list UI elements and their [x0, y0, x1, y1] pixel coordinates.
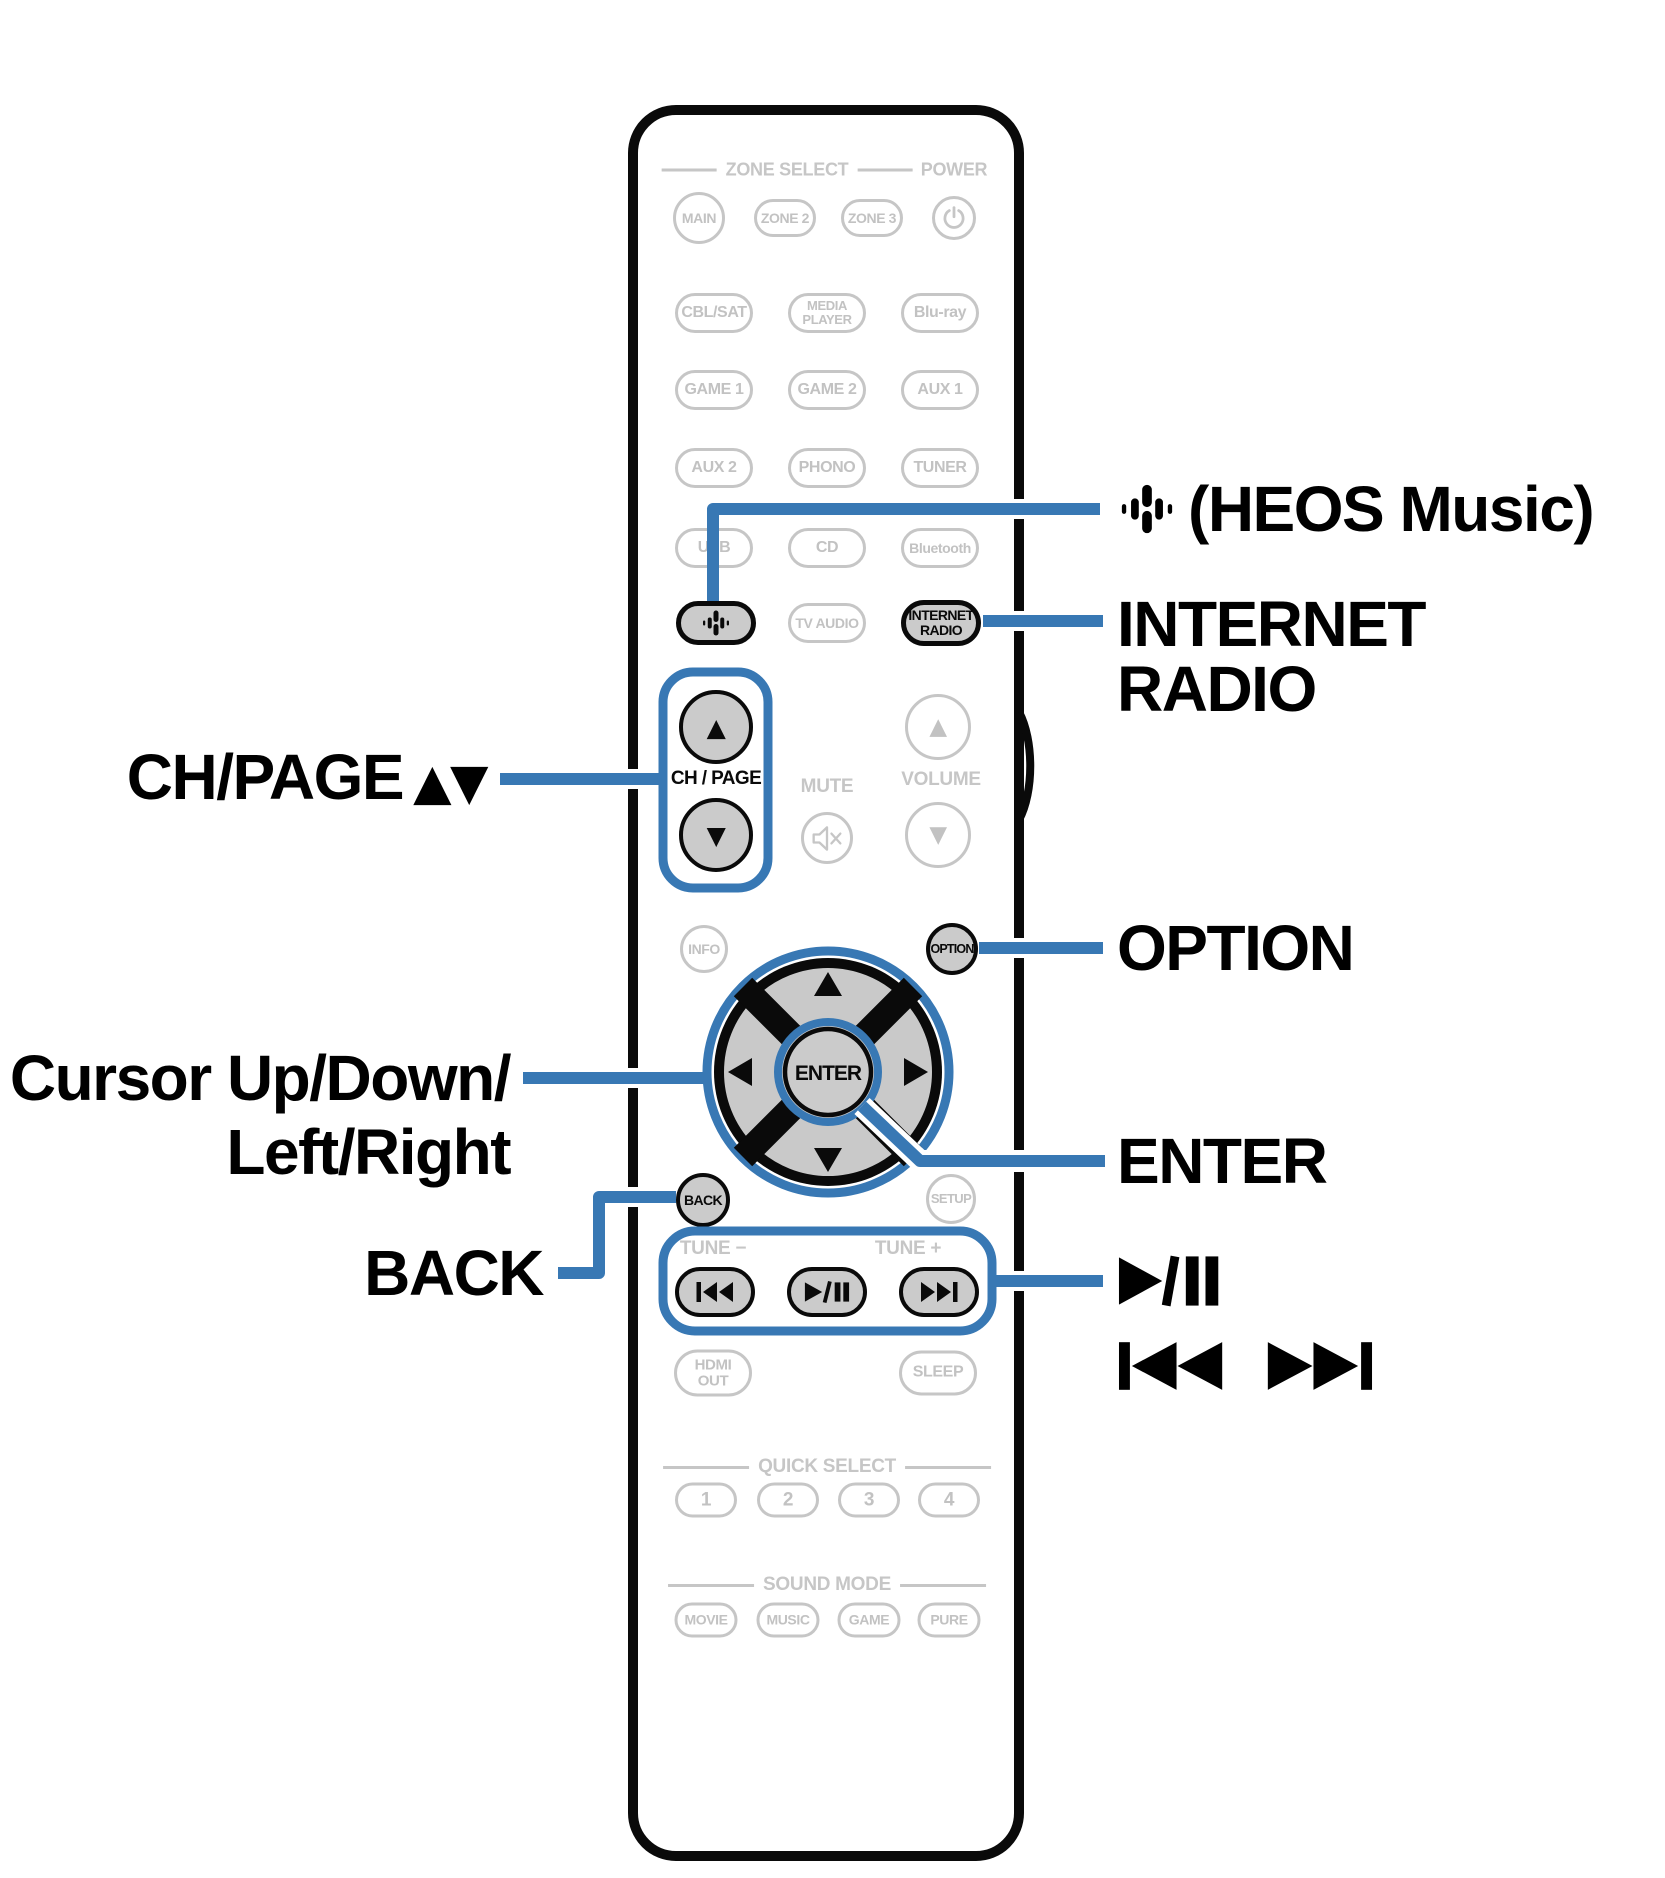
callout-line-heos [713, 509, 1100, 601]
callout-line-back [558, 1197, 676, 1273]
ch-page-callout-label: CH/PAGE [127, 741, 403, 813]
heos-icon [1118, 480, 1176, 538]
graphics-overlay: ENTER [0, 0, 1665, 1878]
heos-music-label: (HEOS Music) [1188, 472, 1593, 546]
option-callout: OPTION [1117, 911, 1353, 985]
back-callout: BACK [364, 1236, 543, 1310]
enter-callout: ENTER [1117, 1124, 1326, 1198]
internet-radio-callout: INTERNET RADIO [1117, 592, 1425, 722]
up-down-triangles-icon: ▲▼ [413, 753, 487, 811]
ch-page-callout: CH/PAGE▲▼ [127, 740, 487, 814]
internet-radio-label-line2: RADIO [1117, 653, 1316, 725]
grip-bump [1019, 712, 1030, 820]
cursor-callout-line2: Left/Right [226, 1116, 510, 1188]
ch-page-group-highlight [663, 672, 768, 888]
remote-diagram: ZONE SELECT POWER MAIN ZONE 2 ZONE 3 CBL… [0, 0, 1665, 1878]
heos-music-callout: (HEOS Music) [1118, 472, 1593, 546]
skip-back-forward-icons [1117, 1342, 1375, 1390]
enter-button-label: ENTER [795, 1062, 862, 1085]
skip-callout [1117, 1342, 1375, 1390]
cursor-callout-line1: Cursor Up/Down/ [10, 1042, 510, 1114]
internet-radio-label-line1: INTERNET [1117, 588, 1425, 660]
playback-group-highlight [663, 1231, 992, 1331]
play-pause-icon [1117, 1255, 1235, 1307]
play-pause-callout [1117, 1255, 1235, 1307]
cursor-callout: Cursor Up/Down/ Left/Right [10, 1041, 510, 1189]
